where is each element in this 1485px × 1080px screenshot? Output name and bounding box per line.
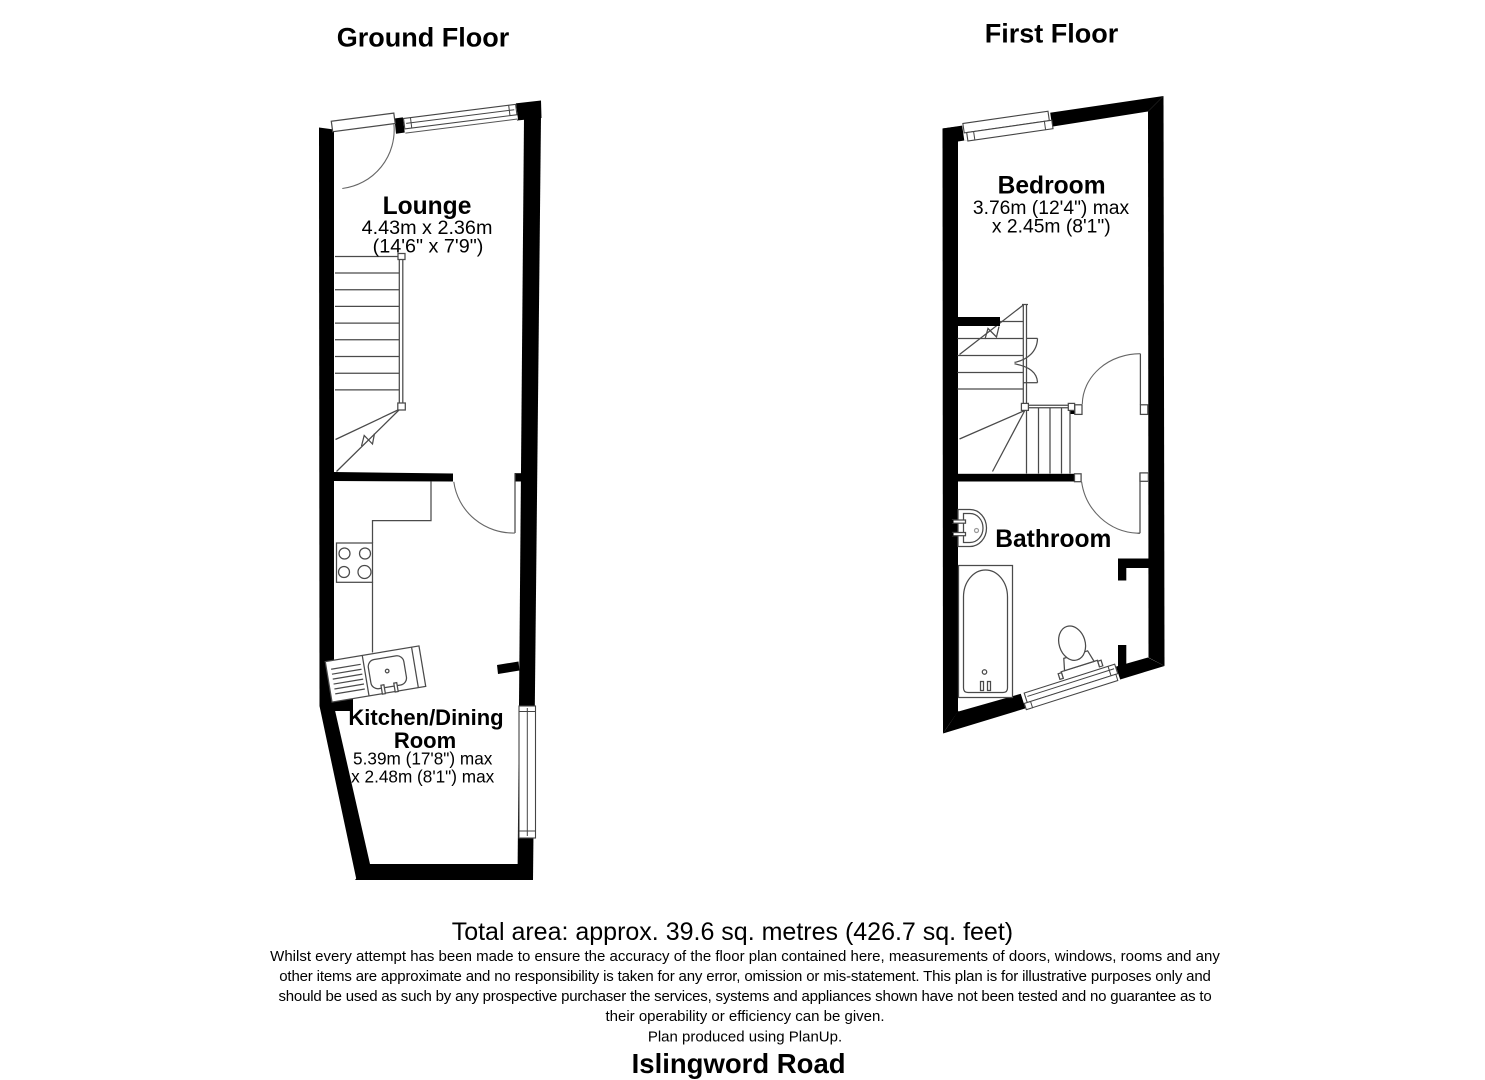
svg-text:(14'6" x 7'9"): (14'6" x 7'9"): [373, 236, 484, 258]
svg-text:Total area: approx. 39.6 sq. m: Total area: approx. 39.6 sq. metres (426…: [452, 918, 1013, 946]
svg-text:Kitchen/Dining: Kitchen/Dining: [348, 705, 503, 730]
svg-text:their operability or efficienc: their operability or efficiency can be g…: [605, 1008, 884, 1025]
svg-text:First Floor: First Floor: [985, 19, 1119, 49]
svg-text:Whilst every attempt has been: Whilst every attempt has been made to en…: [270, 948, 1220, 965]
svg-text:should be used as such by any: should be used as such by any prospectiv…: [278, 988, 1211, 1005]
svg-text:5.39m (17'8") max: 5.39m (17'8") max: [353, 748, 493, 768]
svg-text:x 2.45m (8'1"): x 2.45m (8'1"): [992, 217, 1111, 238]
svg-text:Bedroom: Bedroom: [998, 172, 1106, 199]
svg-text:x 2.48m (8'1") max: x 2.48m (8'1") max: [351, 766, 495, 786]
svg-text:Ground Floor: Ground Floor: [337, 23, 510, 53]
svg-text:Lounge: Lounge: [383, 193, 472, 220]
svg-text:Plan produced using PlanUp.: Plan produced using PlanUp.: [648, 1029, 842, 1046]
svg-text:Islingword Road: Islingword Road: [632, 1048, 846, 1079]
svg-text:Bathroom: Bathroom: [995, 526, 1111, 553]
svg-text:other items are approximate an: other items are approximate and no respo…: [279, 968, 1210, 985]
